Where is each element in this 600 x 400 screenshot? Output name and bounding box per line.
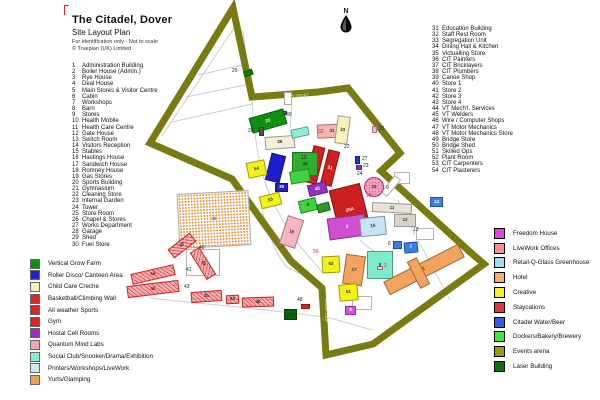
building-number: 12 <box>395 215 415 226</box>
moat-label: DRY MOAT <box>326 298 330 321</box>
map-label: 28 <box>248 129 254 134</box>
building-number: 11 <box>373 203 411 213</box>
map-label: 24 <box>357 172 363 177</box>
map-label: 2 <box>384 264 387 269</box>
map-label: 40 <box>199 246 205 251</box>
map-label: 41 <box>186 268 192 273</box>
map-building <box>377 266 383 270</box>
map-label: 23 <box>363 164 369 169</box>
building-number: 35 <box>192 291 222 302</box>
map-building: 33 <box>226 295 239 305</box>
map-building: 5 <box>367 251 393 279</box>
map-building <box>372 126 377 133</box>
map-building: 35 <box>275 183 288 192</box>
map-label: 6 <box>388 242 391 247</box>
map-building: 35 <box>191 290 223 303</box>
map-label: 29 <box>232 69 238 74</box>
map-label: 43 <box>184 285 190 290</box>
building-number: 54 <box>247 160 267 177</box>
building-number: 7 <box>405 242 418 252</box>
building-number: 33 <box>335 116 350 143</box>
map-building <box>355 156 360 164</box>
map-label: 30 <box>286 113 292 118</box>
map-label: 19 <box>301 156 307 161</box>
building-number: 52 <box>323 257 340 273</box>
map-label: 50 <box>313 250 319 255</box>
building-number: 16 <box>360 217 386 236</box>
map-building: 12 <box>394 214 416 227</box>
map-building <box>393 241 402 249</box>
building-number: 51 <box>339 284 357 300</box>
map-building <box>284 309 297 320</box>
map-building: 46 <box>242 296 274 307</box>
building-number: 4 <box>299 198 317 213</box>
map-building: 52 <box>322 256 341 274</box>
map-label: 48 <box>297 298 303 303</box>
map-building <box>259 127 264 136</box>
map-building: 11 <box>372 202 412 214</box>
map-building: 7 <box>404 241 419 253</box>
map-building: 51 <box>338 283 358 302</box>
building-number: 17 <box>343 255 365 285</box>
building-number: 8 <box>346 307 355 314</box>
map-label: 13 <box>413 228 419 233</box>
site-map: 36252631332021345435532545420A3181614111… <box>0 0 600 400</box>
building-number: 5 <box>368 252 392 278</box>
building-number: 33 <box>227 296 238 304</box>
map-label: 10 <box>366 194 372 199</box>
map-label: 15 <box>379 127 385 132</box>
map-building: 26 <box>265 135 296 150</box>
map-building: 16 <box>359 216 387 238</box>
map-label: 9 <box>386 186 389 191</box>
building-number: 26 <box>266 136 295 149</box>
map-label: 27 <box>362 157 368 162</box>
map-building <box>301 304 310 309</box>
map-label: 22 <box>344 145 350 150</box>
map-label: 32 <box>318 130 324 135</box>
building-number: 35 <box>276 184 287 191</box>
map-building: 8 <box>345 306 356 315</box>
map-building <box>356 165 362 170</box>
building-number: 46 <box>243 297 273 306</box>
map-building: 17 <box>342 254 366 286</box>
building-number: 14 <box>431 198 442 206</box>
map-building: 14 <box>430 197 443 207</box>
